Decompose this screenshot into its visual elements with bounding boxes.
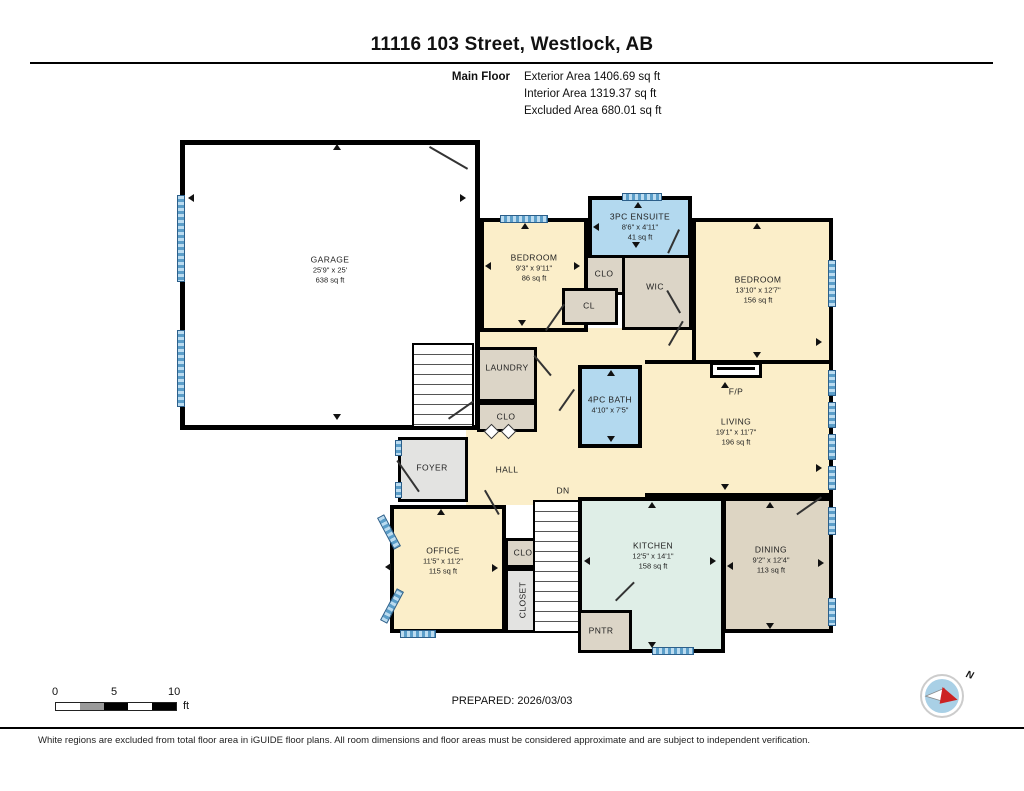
compass-icon: N <box>920 674 964 718</box>
prepared-date: PREPARED: 2026/03/03 <box>0 695 1024 707</box>
room-label-clo-laundry: CLO <box>497 411 516 422</box>
dimension-arrow <box>632 242 640 248</box>
window-ensuite <box>622 193 662 201</box>
dimension-arrow <box>753 352 761 358</box>
dimension-arrow <box>766 502 774 508</box>
room-label-wic: WIC <box>646 281 664 292</box>
footer-divider <box>0 727 1024 729</box>
interior-area: Interior Area 1319.37 sq ft <box>524 88 656 100</box>
room-label-bath: 4PC BATH 4'10" x 7'5" <box>588 395 632 416</box>
disclaimer-text: White regions are excluded from total fl… <box>38 735 998 746</box>
dimension-arrow <box>607 370 615 376</box>
dimension-arrow <box>460 194 466 202</box>
window-foyer-1 <box>395 440 402 456</box>
room-label-hall: HALL <box>496 464 519 475</box>
room-label-clo-bedroom: CLO <box>595 268 614 279</box>
room-label-living: LIVING 19'1" x 11'7" 196 sq ft <box>716 417 757 448</box>
room-label-dining: DINING 9'2" x 12'4" 113 sq ft <box>753 545 790 576</box>
room-label-laundry: LAUNDRY <box>485 362 528 373</box>
window-foyer-2 <box>395 482 402 498</box>
room-label-foyer: FOYER <box>416 462 447 473</box>
room-label-garage: GARAGE 25'9" x 25' 638 sq ft <box>311 255 350 286</box>
window-dining-2 <box>828 598 836 626</box>
floor-plan: GARAGE 25'9" x 25' 638 sq ft BEDROOM 9'3… <box>0 130 1024 675</box>
window-kitchen <box>652 647 694 655</box>
floor-name: Main Floor <box>380 71 510 83</box>
dimension-arrow <box>492 564 498 572</box>
exterior-area: Exterior Area 1406.69 sq ft <box>524 71 660 83</box>
room-label-kitchen: KITCHEN 12'5" x 14'1" 158 sq ft <box>632 541 673 572</box>
dimension-arrow <box>385 563 391 571</box>
title-divider <box>30 62 993 64</box>
window-dining-1 <box>828 507 836 535</box>
dimension-arrow <box>721 484 729 490</box>
dimension-arrow <box>333 414 341 420</box>
dimension-arrow <box>753 223 761 229</box>
dimension-arrow <box>816 338 822 346</box>
window-garage-2 <box>177 330 185 407</box>
garage-stairs <box>412 343 474 428</box>
dimension-arrow <box>634 202 642 208</box>
dimension-arrow <box>766 623 774 629</box>
page-title: 11116 103 Street, Westlock, AB <box>0 34 1024 56</box>
dimension-arrow <box>607 436 615 442</box>
room-label-ensuite: 3PC ENSUITE 8'6" x 4'11" 41 sq ft <box>610 212 670 243</box>
room-label-cl: CL <box>583 300 595 311</box>
room-label-bedroom-right: BEDROOM 13'10" x 12'7" 156 sq ft <box>735 275 782 306</box>
window-garage-1 <box>177 195 185 282</box>
room-laundry <box>477 347 537 402</box>
window-living-3 <box>828 434 836 460</box>
window-living-4 <box>828 466 836 490</box>
floor-plan-page: 11116 103 Street, Westlock, AB Main Floo… <box>0 0 1024 791</box>
dimension-arrow <box>710 557 716 565</box>
room-label-closet: CLOSET <box>517 582 528 618</box>
window-bedroom-right <box>828 260 836 307</box>
window-living-2 <box>828 402 836 428</box>
dimension-arrow <box>437 509 445 515</box>
dimension-arrow <box>816 464 822 472</box>
dimension-arrow <box>648 502 656 508</box>
dimension-arrow <box>333 144 341 150</box>
dimension-arrow <box>593 223 599 231</box>
fireplace <box>710 362 762 378</box>
dimension-arrow <box>727 562 733 570</box>
dimension-arrow <box>574 262 580 270</box>
dimension-arrow <box>521 223 529 229</box>
room-label-bedroom-left: BEDROOM 9'3" x 9'11" 86 sq ft <box>511 253 558 284</box>
dimension-arrow <box>485 262 491 270</box>
dimension-arrow <box>648 642 656 648</box>
dimension-arrow <box>518 320 526 326</box>
window-living-1 <box>828 370 836 396</box>
room-label-fp: F/P <box>729 386 743 397</box>
excluded-area: Excluded Area 680.01 sq ft <box>524 105 661 117</box>
window-bedroom-left <box>500 215 548 223</box>
room-label-pntr: PNTR <box>589 625 614 636</box>
dimension-arrow <box>818 559 824 567</box>
window-office-bay-3 <box>400 630 436 638</box>
compass-needle <box>920 674 964 718</box>
dimension-arrow <box>188 194 194 202</box>
room-label-office: OFFICE 11'5" x 11'2" 115 sq ft <box>423 546 463 577</box>
room-label-clo-office: CLO <box>514 547 533 558</box>
dimension-arrow <box>584 557 590 565</box>
room-label-dn: DN <box>556 485 569 496</box>
